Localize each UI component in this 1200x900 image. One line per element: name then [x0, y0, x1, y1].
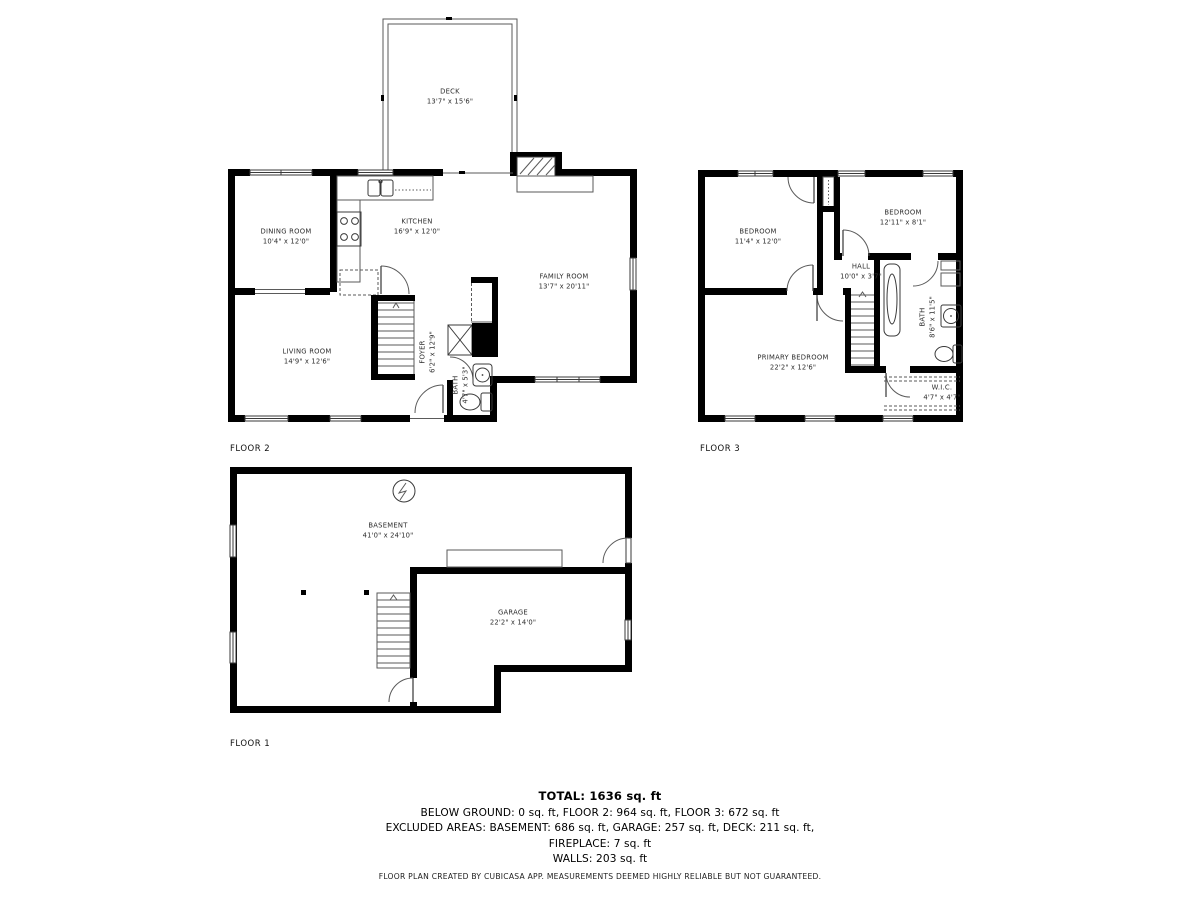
floor-1-walls: [230, 467, 632, 713]
room-label-dining-room: DINING ROOM 10'4" x 12'0": [261, 227, 312, 246]
floor-2-windows: [245, 170, 637, 422]
disclaimer: FLOOR PLAN CREATED BY CUBICASA APP. MEAS…: [0, 872, 1200, 881]
floor-2-walls: [228, 169, 637, 422]
bath-sink: [473, 364, 492, 386]
bedroom-closet: [788, 177, 840, 295]
foyer-closet: [471, 277, 498, 325]
front-door: [410, 385, 444, 419]
floor-2-stairs: [371, 295, 415, 380]
fireplace-area-line: FIREPLACE: 7 sq. ft: [0, 837, 1200, 852]
support-post: [364, 590, 369, 595]
closet-door-arc: [788, 177, 814, 203]
water-heater-icon: [393, 480, 415, 502]
total-area: TOTAL: 1636 sq. ft: [0, 789, 1200, 803]
floor-plan-page: DECK 13'7" x 15'6" DINING ROOM 10'4" x 1…: [0, 0, 1200, 900]
floors-area-line: BELOW GROUND: 0 sq. ft, FLOOR 2: 964 sq.…: [0, 806, 1200, 821]
room-label-bedroom-2: BEDROOM 12'11" x 8'1": [880, 208, 926, 227]
room-label-foyer: FOYER 6'2" x 12'9": [418, 331, 437, 373]
chimney: [472, 323, 498, 357]
room-label-family-room: FAMILY ROOM 13'7" x 20'11": [539, 272, 590, 291]
room-label-hall: HALL 10'0" x 3'7": [840, 262, 882, 281]
basement-shelf: [447, 550, 562, 567]
floor-1-windows: [230, 525, 632, 663]
area-summary: TOTAL: 1636 sq. ft BELOW GROUND: 0 sq. f…: [0, 789, 1200, 868]
floor-2-tag: FLOOR 2: [230, 444, 270, 454]
room-label-bedroom-1: BEDROOM 11'4" x 12'0": [735, 227, 781, 246]
floor-1-plan: [230, 467, 633, 713]
floor-1-stairs: [377, 593, 410, 668]
floor-plan-drawing: [0, 0, 1200, 900]
floor-1-tag: FLOOR 1: [230, 739, 270, 749]
kitchen-sink: [368, 180, 380, 196]
support-post: [301, 590, 306, 595]
room-label-primary-bedroom: PRIMARY BEDROOM 22'2" x 12'6": [757, 353, 828, 372]
stove: [337, 212, 361, 246]
bathtub: [884, 264, 900, 336]
room-label-bath-3: BATH 8'6" x 11'5": [918, 296, 937, 338]
room-label-deck: DECK 13'7" x 15'6": [427, 87, 473, 106]
room-label-wic: W.I.C. 4'7" x 4'7": [923, 383, 960, 402]
floor-3-stairs: [851, 292, 874, 365]
kitchen-door-arc: [381, 266, 409, 294]
room-label-kitchen: KITCHEN 16'9" x 12'0": [394, 217, 440, 236]
room-label-garage: GARAGE 22'2" x 14'0": [490, 608, 536, 627]
room-label-basement: BASEMENT 41'0" x 24'10": [363, 521, 414, 540]
room-label-bath-2: BATH 4'7" x 5'3": [451, 366, 470, 403]
room-label-living-room: LIVING ROOM 14'9" x 12'6": [283, 347, 332, 366]
walls-area-line: WALLS: 203 sq. ft: [0, 852, 1200, 867]
floor-3-tag: FLOOR 3: [700, 444, 740, 454]
excluded-area-line: EXCLUDED AREAS: BASEMENT: 686 sq. ft, GA…: [0, 821, 1200, 836]
